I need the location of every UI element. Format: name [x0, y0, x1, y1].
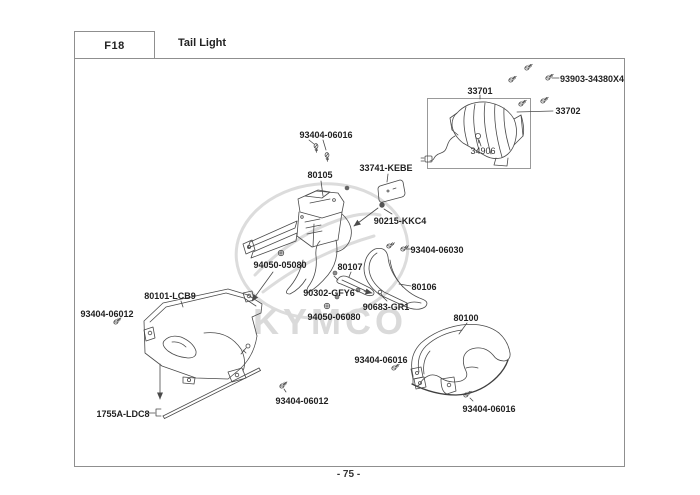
rear-fender-80100: [411, 324, 510, 395]
label-94050-06080: 94050-06080: [307, 312, 360, 322]
tail-light-unit-33701: [421, 99, 531, 227]
label-1755a-ldc8: 1755A-LDC8: [96, 409, 149, 419]
label-80105: 80105: [307, 170, 332, 180]
label-93404-06016-bottom: 93404-06016: [462, 404, 515, 414]
label-90215-kkc4: 90215-KKC4: [374, 216, 427, 226]
label-33741-kebe: 33741-KEBE: [359, 163, 412, 173]
part-labels: 93903-34380X4 33701 33702 34906 93404-06…: [80, 74, 624, 419]
label-33701: 33701: [467, 86, 492, 96]
label-93404-06016-mid: 93404-06016: [354, 355, 407, 365]
exploded-diagram: KYMCO: [0, 0, 700, 495]
label-90302-gfy6: 90302-GFY6: [303, 288, 355, 298]
label-80101-lcb9: 80101-LCB9: [144, 291, 196, 301]
label-34906: 34906: [470, 146, 495, 156]
screws-93903: [508, 63, 554, 107]
label-90683-gr1: 90683-GR1: [363, 302, 410, 312]
label-80106: 80106: [411, 282, 436, 292]
pivot-pin: [241, 344, 250, 354]
label-94050-05080: 94050-05080: [253, 260, 306, 270]
taillight-bracket-80105: [243, 190, 351, 294]
inner-fender-80101: [144, 289, 262, 384]
label-80107: 80107: [337, 262, 362, 272]
label-93404-06012-left: 93404-06012: [80, 309, 133, 319]
catalog-page: F18 Tail Light - 75 - KYMCO: [0, 0, 700, 495]
label-33702: 33702: [555, 106, 580, 116]
label-93404-06012-bottom: 93404-06012: [275, 396, 328, 406]
label-93903-34380x4: 93903-34380X4: [560, 74, 624, 84]
label-93404-06016-top: 93404-06016: [299, 130, 352, 140]
label-93404-06030: 93404-06030: [410, 245, 463, 255]
label-80100: 80100: [453, 313, 478, 323]
